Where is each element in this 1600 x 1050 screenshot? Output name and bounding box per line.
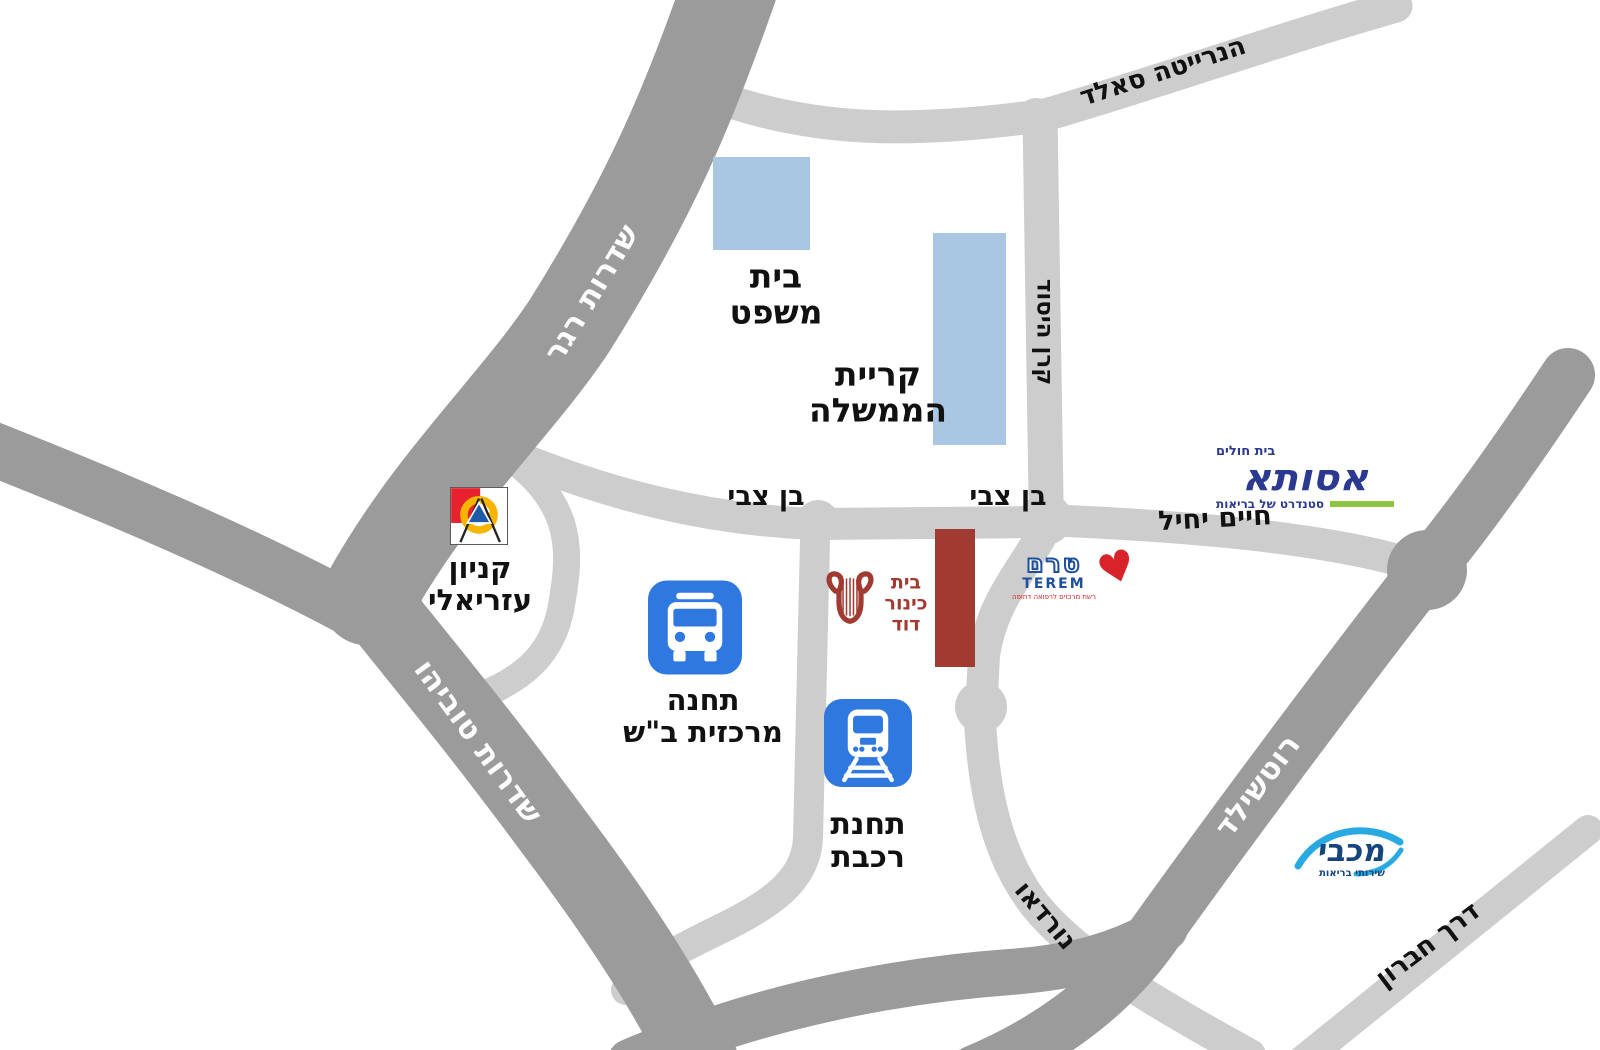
junction-nordau	[955, 681, 1007, 733]
assuta-name: אסותא	[1209, 459, 1401, 496]
assuta-green-bar	[1330, 501, 1394, 507]
road-label-ben-zvi-west: בן צבי	[727, 482, 804, 512]
courthouse-label: בית משפט	[729, 259, 822, 332]
azrieli-logo-icon	[450, 487, 508, 545]
courthouse-building	[713, 157, 810, 250]
road-label-keren-hayesod: קרן היסוד	[1031, 279, 1056, 385]
maccabi-tagline: שירותי בריאות	[1294, 868, 1410, 879]
assuta-tagline: סטנדרט של בריאות	[1216, 497, 1324, 511]
road-top-connector	[725, 100, 1024, 127]
terem-tagline: רשת מרכזים לרפואה דחופה	[1012, 594, 1096, 601]
train-station-label: תחנת רכבת	[830, 808, 905, 874]
azrieli-mall-label: קניון עזריאלי	[428, 553, 532, 617]
assuta-logo: בית חולים אסותא סטנדרט של בריאות	[1216, 444, 1394, 511]
kinor-david-label: בית כינור דוד	[885, 573, 928, 636]
bus-station-icon	[648, 580, 742, 675]
street-map: שדרות רגר שדרות טוביהו רוטשילד הנרייטה ס…	[0, 0, 1600, 1050]
harp-icon	[821, 568, 879, 634]
road-west-branch	[0, 440, 352, 610]
terem-name-hebrew: טרם	[1026, 551, 1081, 576]
terem-heart-icon: ♥	[1094, 546, 1140, 590]
terem-logo: טרם TEREM רשת מרכזים לרפואה דחופה ♥	[1012, 551, 1136, 601]
train-station-icon	[824, 698, 912, 788]
junction-szold	[1017, 98, 1055, 136]
bus-station-label: תחנה מרכזית ב"ש	[623, 685, 783, 749]
road-label-ben-zvi-east: בן צבי	[969, 482, 1046, 512]
terem-name-latin: TEREM	[1022, 577, 1085, 591]
junction-dark-y	[334, 559, 422, 647]
government-complex-label: קריית הממשלה	[809, 357, 947, 430]
road-network	[0, 0, 1600, 1050]
roundabout-rothschild	[1387, 530, 1467, 610]
maccabi-logo: מכבי שירותי בריאות	[1294, 836, 1410, 879]
kinor-david-building	[935, 529, 975, 667]
maccabi-name: מכבי	[1292, 836, 1411, 867]
